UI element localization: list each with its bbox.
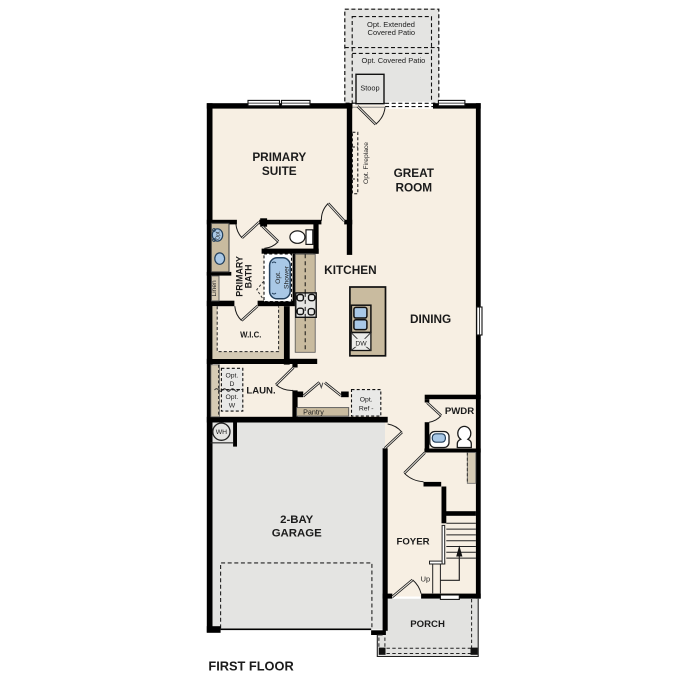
svg-text:Opt. Covered Patio: Opt. Covered Patio (362, 56, 426, 65)
svg-text:GREAT: GREAT (394, 166, 435, 180)
svg-text:Stoop: Stoop (360, 84, 379, 93)
svg-text:D: D (229, 381, 234, 388)
svg-text:FOYER: FOYER (396, 536, 429, 547)
svg-text:PWDR: PWDR (445, 406, 474, 417)
svg-text:Opt.: Opt. (275, 271, 282, 284)
svg-text:Covered Patio: Covered Patio (368, 28, 416, 37)
svg-text:FIRST FLOOR: FIRST FLOOR (208, 659, 293, 674)
svg-text:2-BAY: 2-BAY (280, 514, 314, 526)
svg-text:Opt.: Opt. (225, 394, 238, 401)
svg-text:Opt.: Opt. (216, 230, 222, 239)
svg-text:W.I.C.: W.I.C. (240, 330, 261, 339)
svg-text:BATH: BATH (244, 264, 254, 288)
svg-text:LAUN.: LAUN. (246, 385, 275, 396)
svg-text:W: W (229, 403, 236, 410)
svg-text:SUITE: SUITE (262, 164, 297, 178)
svg-text:DW: DW (355, 341, 367, 348)
svg-text:PRIMARY: PRIMARY (252, 150, 306, 164)
svg-text:Shower: Shower (283, 265, 290, 289)
svg-text:ROOM: ROOM (395, 180, 432, 194)
svg-text:WH: WH (216, 429, 227, 436)
svg-text:DINING: DINING (410, 312, 451, 326)
svg-text:Up: Up (421, 575, 430, 584)
svg-text:PORCH: PORCH (410, 619, 445, 630)
svg-text:GARAGE: GARAGE (272, 528, 322, 540)
svg-text:KITCHEN: KITCHEN (324, 263, 376, 277)
svg-text:Opt. Fireplace: Opt. Fireplace (363, 142, 370, 184)
svg-text:Ref -: Ref - (359, 406, 374, 413)
svg-text:Linen: Linen (211, 280, 218, 296)
svg-text:Pantry: Pantry (303, 408, 324, 417)
svg-text:Opt.: Opt. (360, 397, 373, 404)
svg-text:Opt.: Opt. (225, 373, 238, 380)
